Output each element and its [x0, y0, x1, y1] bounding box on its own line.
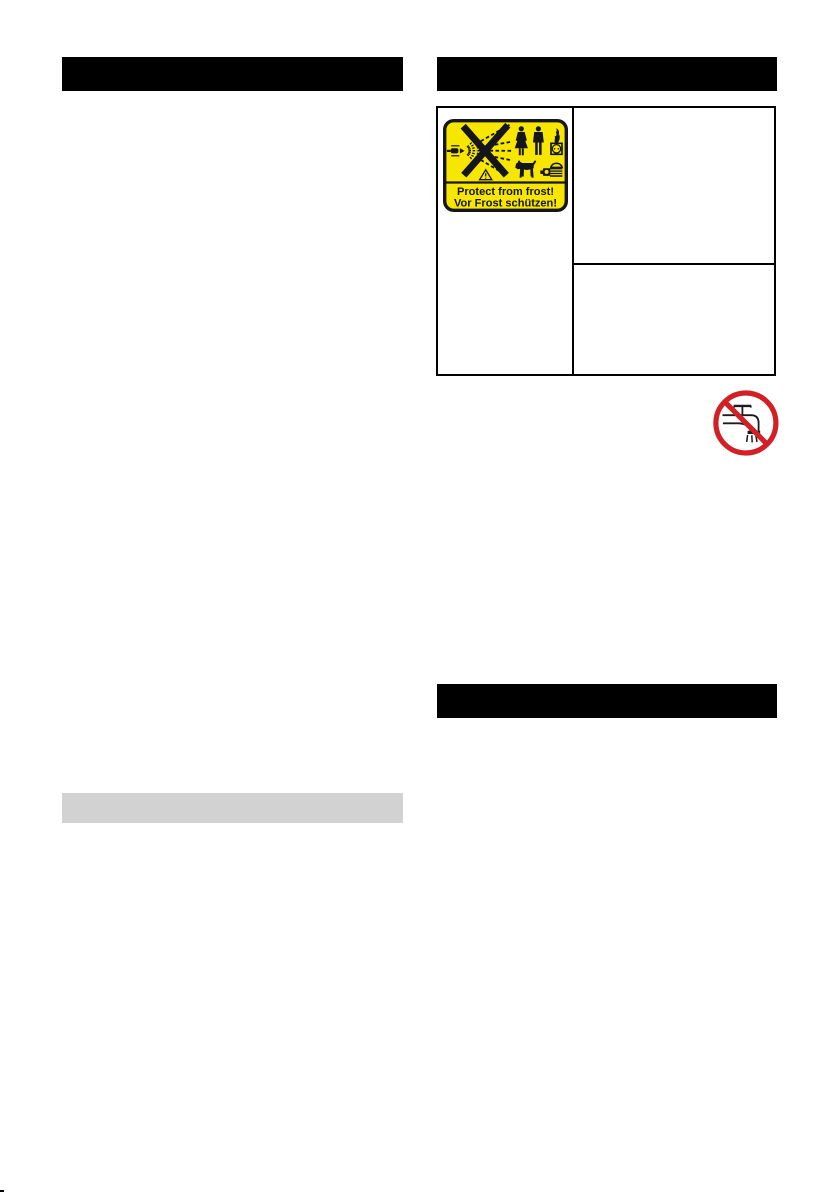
svg-text:Protect from frost!: Protect from frost! — [457, 186, 554, 198]
svg-text:Vor Frost schützen!: Vor Frost schützen! — [454, 198, 557, 210]
